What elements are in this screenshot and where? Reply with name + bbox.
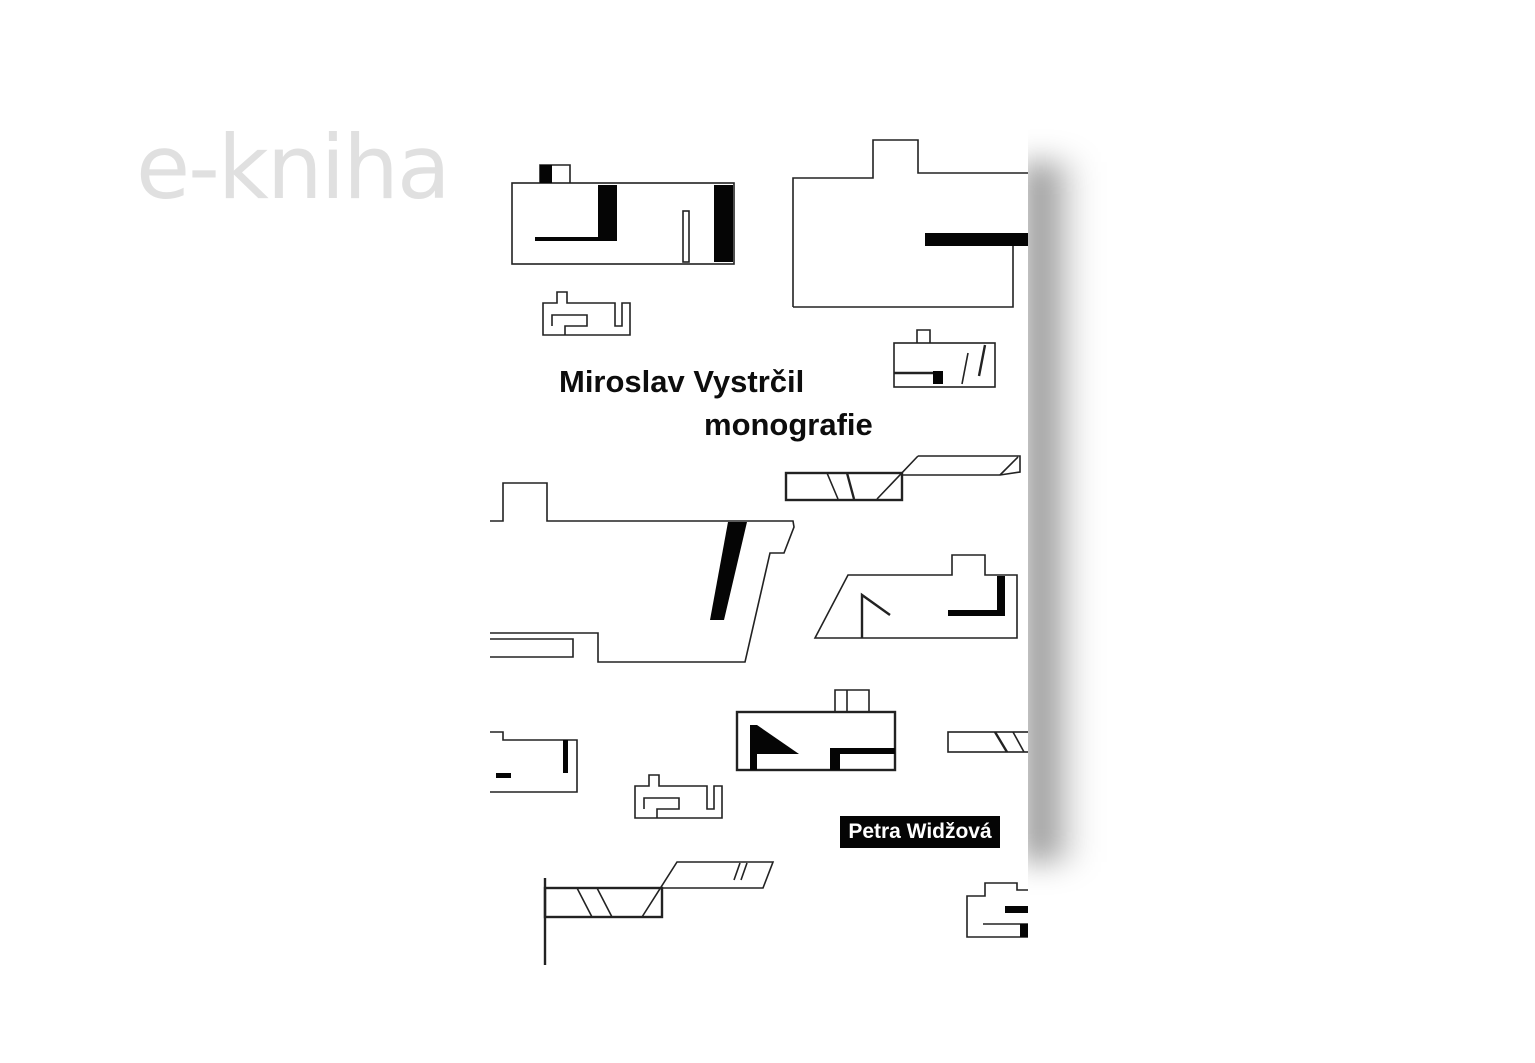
slatted-bars-sketch-lower xyxy=(545,862,773,965)
slatted-bars-sketch-upper xyxy=(786,456,1020,500)
floorplan-sketch-top-right xyxy=(793,140,1028,307)
cover-artwork xyxy=(490,127,1028,985)
large-plan-sketch xyxy=(490,483,794,662)
corner-plan-sketch xyxy=(490,732,577,792)
ebook-watermark: e-kniha xyxy=(136,122,449,214)
stepped-plan-sketch-bottom-right xyxy=(967,883,1028,937)
book-title: Miroslav Vystrčil xyxy=(559,365,804,399)
maze-sketch-upper xyxy=(543,292,630,335)
author-name: Petra Widžová xyxy=(848,820,991,844)
flag-box-sketch xyxy=(894,330,995,387)
trapezoid-plan-sketch xyxy=(815,555,1017,638)
flag-box-sketch-lower xyxy=(737,690,895,770)
author-badge: Petra Widžová xyxy=(840,816,1000,848)
page-background: { "watermark": { "text": "e-kniha" }, "b… xyxy=(0,0,1535,1063)
slatted-bar-right-sketch xyxy=(948,732,1028,752)
maze-sketch-lower xyxy=(635,775,722,818)
book-subtitle: monografie xyxy=(704,408,873,442)
book-cover: Miroslav Vystrčil monografie Petra Widžo… xyxy=(490,127,1028,985)
book-drop-shadow xyxy=(1024,162,1084,862)
floorplan-sketch-top-left xyxy=(512,165,734,264)
